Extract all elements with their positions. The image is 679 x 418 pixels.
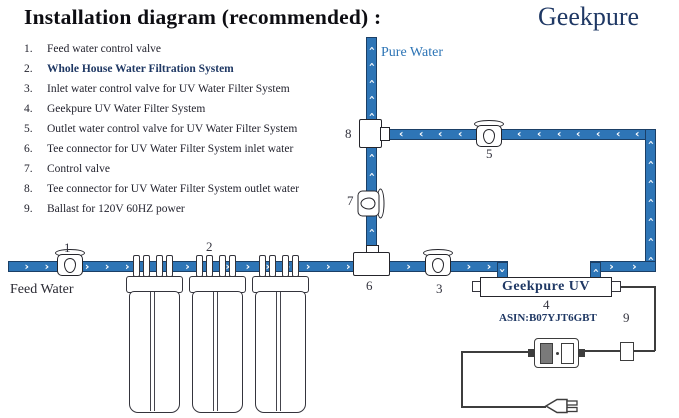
tee-connector-6 bbox=[353, 245, 390, 276]
housing-fitting bbox=[282, 255, 289, 277]
ac-wire-top bbox=[461, 351, 528, 353]
ballast-panel bbox=[561, 343, 574, 364]
legend-item-2: 2.Whole House Water Filtration System bbox=[24, 63, 299, 83]
legend-item-number: 2. bbox=[24, 63, 38, 75]
legend-item-number: 8. bbox=[24, 183, 38, 195]
ballast-label-panel bbox=[540, 343, 553, 364]
legend-item-text: Outlet water control valve for UV Water … bbox=[47, 123, 297, 135]
tee-body bbox=[359, 119, 382, 148]
filter-housing-2 bbox=[189, 276, 246, 414]
legend-item-1: 1.Feed water control valve bbox=[24, 43, 299, 63]
callout-3: 3 bbox=[436, 281, 443, 297]
valve-ball-icon bbox=[361, 198, 376, 210]
pure-water-label: Pure Water bbox=[381, 45, 443, 61]
housing-fitting bbox=[156, 255, 163, 277]
legend-item-text: Geekpure UV Water Filter System bbox=[47, 103, 205, 115]
flow-arrows: ››››››››››››› bbox=[384, 130, 655, 139]
housing-fitting bbox=[259, 255, 266, 277]
ballast-box bbox=[534, 338, 579, 368]
legend-item-3: 3.Inlet water control valve for UV Water… bbox=[24, 83, 299, 103]
housing-fitting bbox=[292, 255, 299, 277]
feed-water-label: Feed Water bbox=[10, 282, 74, 298]
flow-arrows: ››››› bbox=[367, 38, 376, 124]
legend-item-text: Feed water control valve bbox=[47, 43, 161, 55]
callout-4: 4 bbox=[543, 297, 550, 313]
legend-item-text: Tee connector for UV Water Filter System… bbox=[47, 143, 293, 155]
ballast-indicator-dot bbox=[556, 352, 559, 355]
housing-fitting bbox=[143, 255, 150, 277]
tee-socket bbox=[380, 127, 390, 141]
legend-item-number: 5. bbox=[24, 123, 38, 135]
housing-fitting bbox=[206, 255, 213, 277]
legend-item-text: Control valve bbox=[47, 163, 110, 175]
callout-1: 1 bbox=[64, 240, 71, 256]
legend-item-text: Ballast for 120V 60HZ power bbox=[47, 203, 185, 215]
legend-item-number: 9. bbox=[24, 203, 38, 215]
legend-item-number: 3. bbox=[24, 83, 38, 95]
tee-connector-8 bbox=[359, 119, 390, 148]
power-plug-icon bbox=[544, 396, 582, 416]
callout-9: 9 bbox=[623, 310, 630, 326]
legend-item-number: 6. bbox=[24, 143, 38, 155]
brand-logo: Geekpure bbox=[538, 2, 678, 32]
ac-wire-vertical bbox=[461, 351, 463, 407]
filter-housing-1 bbox=[126, 276, 183, 414]
asin-label: ASIN:B07YJT6GBT bbox=[499, 312, 597, 324]
legend-item-text: Whole House Water Filtration System bbox=[47, 63, 234, 75]
legend-item-5: 5.Outlet water control valve for UV Wate… bbox=[24, 123, 299, 143]
housing-fitting bbox=[219, 255, 226, 277]
flow-arrows: › bbox=[591, 263, 600, 278]
housing-seam bbox=[276, 292, 281, 411]
housing-fitting bbox=[269, 255, 276, 277]
tee-body bbox=[353, 252, 390, 276]
legend-item-number: 7. bbox=[24, 163, 38, 175]
valve-bypass-7 bbox=[358, 187, 385, 221]
legend-item-7: 7.Control valve bbox=[24, 163, 299, 183]
callout-6: 6 bbox=[366, 278, 373, 294]
legend-item-number: 1. bbox=[24, 43, 38, 55]
housing-seam bbox=[213, 292, 218, 411]
filter-housing-3 bbox=[252, 276, 309, 414]
flow-arrows: ››››››› bbox=[646, 130, 655, 271]
callout-2: 2 bbox=[206, 239, 213, 255]
legend-item-8: 8.Tee connector for UV Water Filter Syst… bbox=[24, 183, 299, 203]
connector-wire-right bbox=[634, 350, 655, 352]
lamp-connector bbox=[620, 342, 634, 361]
lamp-wire-horizontal bbox=[620, 286, 656, 288]
pipe-top-return: ››››››››››››› bbox=[383, 129, 656, 140]
callout-8: 8 bbox=[345, 126, 352, 142]
legend-item-9: 9.Ballast for 120V 60HZ power bbox=[24, 203, 299, 223]
housing-seam bbox=[150, 292, 155, 411]
installation-diagram-page: Installation diagram (recommended) : Gee… bbox=[0, 0, 679, 418]
ballast-nub bbox=[578, 349, 585, 357]
legend-item-6: 6.Tee connector for UV Water Filter Syst… bbox=[24, 143, 299, 163]
ac-wire-bottom bbox=[461, 406, 546, 408]
uv-filter-unit: Geekpure UV bbox=[480, 277, 612, 297]
uv-right-cap bbox=[611, 281, 621, 292]
legend-item-4: 4.Geekpure UV Water Filter System bbox=[24, 103, 299, 123]
legend-item-text: Tee connector for UV Water Filter System… bbox=[47, 183, 299, 195]
pipe-pure-water: ››››› bbox=[366, 37, 377, 125]
valve-uv-inlet-3 bbox=[421, 249, 455, 276]
housing-fitting bbox=[133, 255, 140, 277]
callout-5: 5 bbox=[486, 146, 493, 162]
callout-7: 7 bbox=[347, 193, 354, 209]
housing-fitting bbox=[166, 255, 173, 277]
lamp-wire-vertical bbox=[654, 286, 656, 351]
legend-list: 1.Feed water control valve 2.Whole House… bbox=[24, 43, 299, 223]
valve-uv-outlet-5 bbox=[472, 120, 506, 147]
housing-fitting bbox=[229, 255, 236, 277]
ballast-nub bbox=[528, 349, 535, 357]
legend-item-number: 4. bbox=[24, 103, 38, 115]
legend-item-text: Inlet water control valve for UV Water F… bbox=[47, 83, 290, 95]
connector-wire-left bbox=[584, 350, 620, 352]
flow-arrows: › bbox=[498, 263, 507, 278]
page-title: Installation diagram (recommended) : bbox=[24, 5, 381, 30]
housing-fitting bbox=[196, 255, 203, 277]
pipe-right-vertical: ››››››› bbox=[645, 129, 656, 272]
